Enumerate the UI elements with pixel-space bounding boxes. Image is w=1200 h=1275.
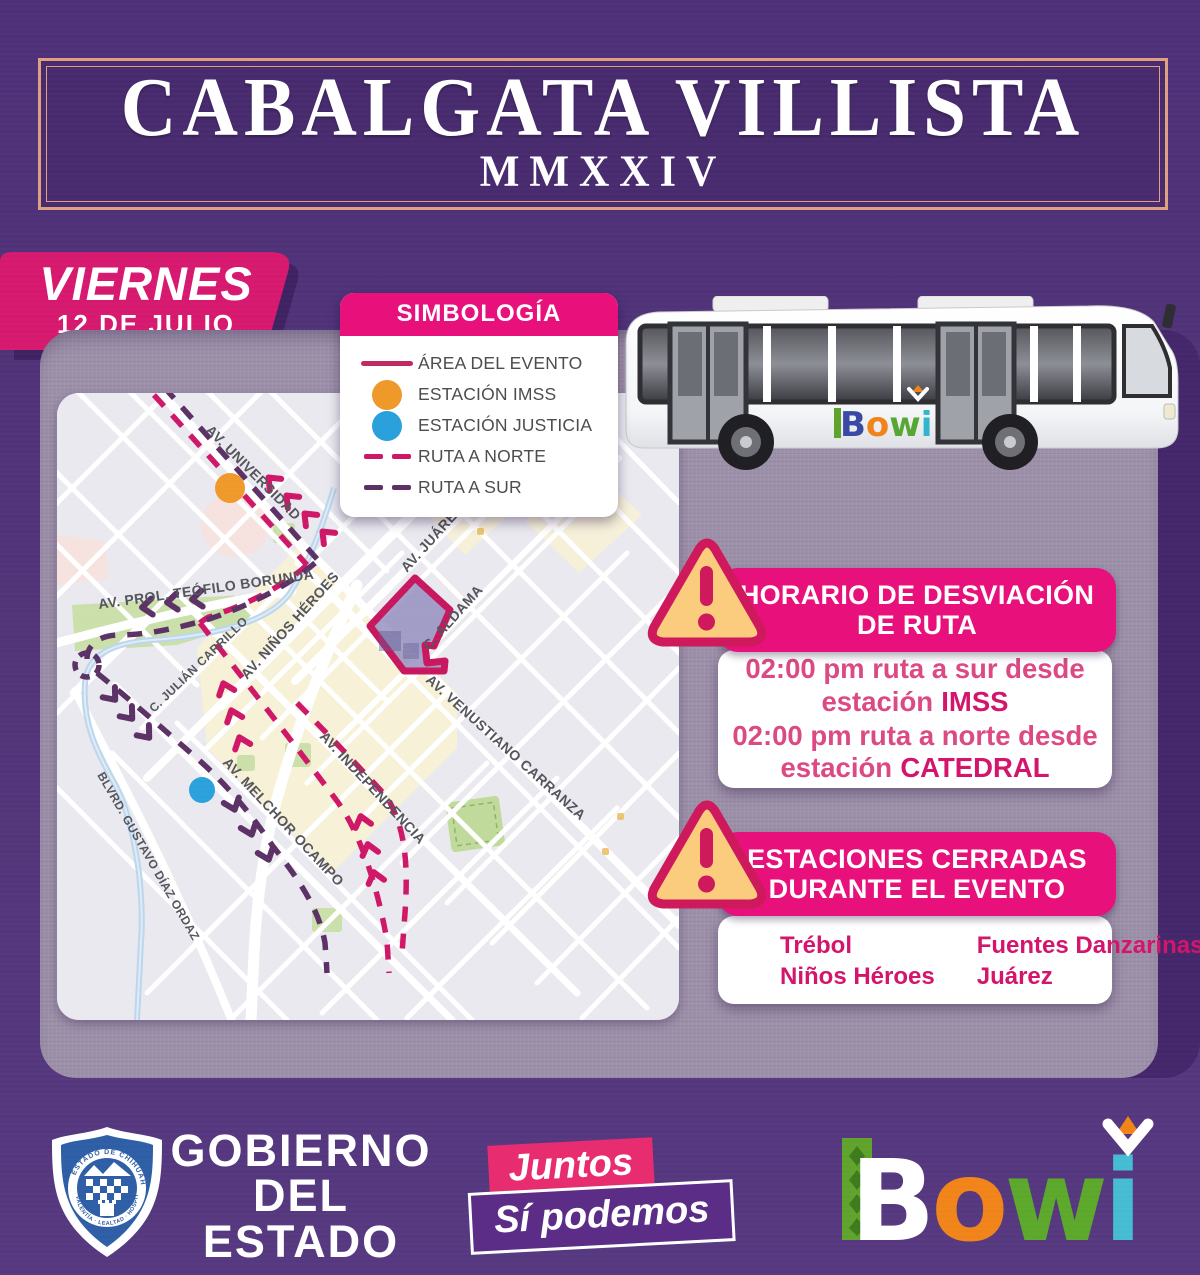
alert-horario-card: 02:00 pm ruta a sur desde estaciónIMSS 0…: [718, 650, 1112, 788]
legend-item-imss: ESTACIÓN IMSS: [356, 379, 604, 410]
closed-station: Trébol: [780, 932, 935, 960]
station-imss-dot: [215, 473, 245, 503]
closed-station: Niños Héroes: [780, 963, 935, 991]
alert-estaciones-title: ESTACIONES CERRADAS DURANTE EL EVENTO: [718, 832, 1116, 916]
page-title: CABALGATA VILLISTA: [121, 69, 1086, 145]
chihuahua-state-shield: ESTADO DE CHIHUAHUA VALENTÍA · LEALTAD ·…: [46, 1124, 168, 1262]
imss-station-dot-icon: [356, 380, 418, 410]
closed-station: Fuentes Danzarinas: [977, 932, 1200, 960]
bus-illustration: Bowi: [618, 296, 1193, 471]
alert-estaciones-card: Trébol Fuentes Danzarinas Niños Héroes J…: [718, 916, 1112, 1004]
bus-headlight: [1164, 404, 1175, 419]
title-frame: CABALGATA VILLISTA MMXXIV: [38, 58, 1168, 210]
station-justicia-dot: [189, 777, 215, 803]
warning-triangle-icon: [646, 536, 768, 654]
legend-item-area: ÁREA DEL EVENTO: [356, 348, 604, 379]
event-area-line-icon: [356, 361, 418, 366]
legend-card: SIMBOLOGÍA ÁREA DEL EVENTO ESTACIÓN IMSS…: [340, 293, 618, 517]
horario-line: 02:00 pm ruta a sur desde estaciónIMSS: [728, 653, 1102, 718]
horario-line: 02:00 pm ruta a norte desde estaciónCATE…: [728, 720, 1102, 785]
slogan-badge: Juntos Sí podemos: [465, 1133, 736, 1255]
svg-text:Bowi: Bowi: [840, 405, 932, 445]
dashed-line-icon: [356, 485, 418, 490]
warning-triangle-icon: [646, 798, 768, 916]
legend-item-justicia: ESTACIÓN JUSTICIA: [356, 410, 604, 441]
date-day: VIERNES: [10, 260, 282, 307]
poster: CABALGATA VILLISTA MMXXIV VIERNES 12 DE …: [0, 0, 1200, 1275]
closed-station: Juárez: [977, 963, 1200, 991]
dashed-line-icon: [356, 454, 418, 459]
government-wordmark: GOBIERNO DEL ESTADO DE CHIHUAHUA: [160, 1128, 442, 1275]
slogan-line2: Sí podemos: [468, 1179, 736, 1255]
legend-item-ruta-norte: RUTA A NORTE: [356, 441, 604, 472]
bus-wheel: [982, 414, 1038, 470]
bowi-logo: Bowi: [826, 1112, 1164, 1262]
bus-mirror: [1162, 303, 1177, 329]
bus-wheel: [718, 414, 774, 470]
page-title-year: MMXXIV: [480, 147, 727, 197]
svg-text:Bowi: Bowi: [850, 1137, 1138, 1262]
map-park: [445, 795, 505, 852]
justicia-station-dot-icon: [356, 411, 418, 441]
legend-title: SIMBOLOGÍA: [340, 293, 618, 336]
legend-item-ruta-sur: RUTA A SUR: [356, 472, 604, 503]
alert-horario-title: HORARIO DE DESVIACIÓN DE RUTA: [718, 568, 1116, 652]
